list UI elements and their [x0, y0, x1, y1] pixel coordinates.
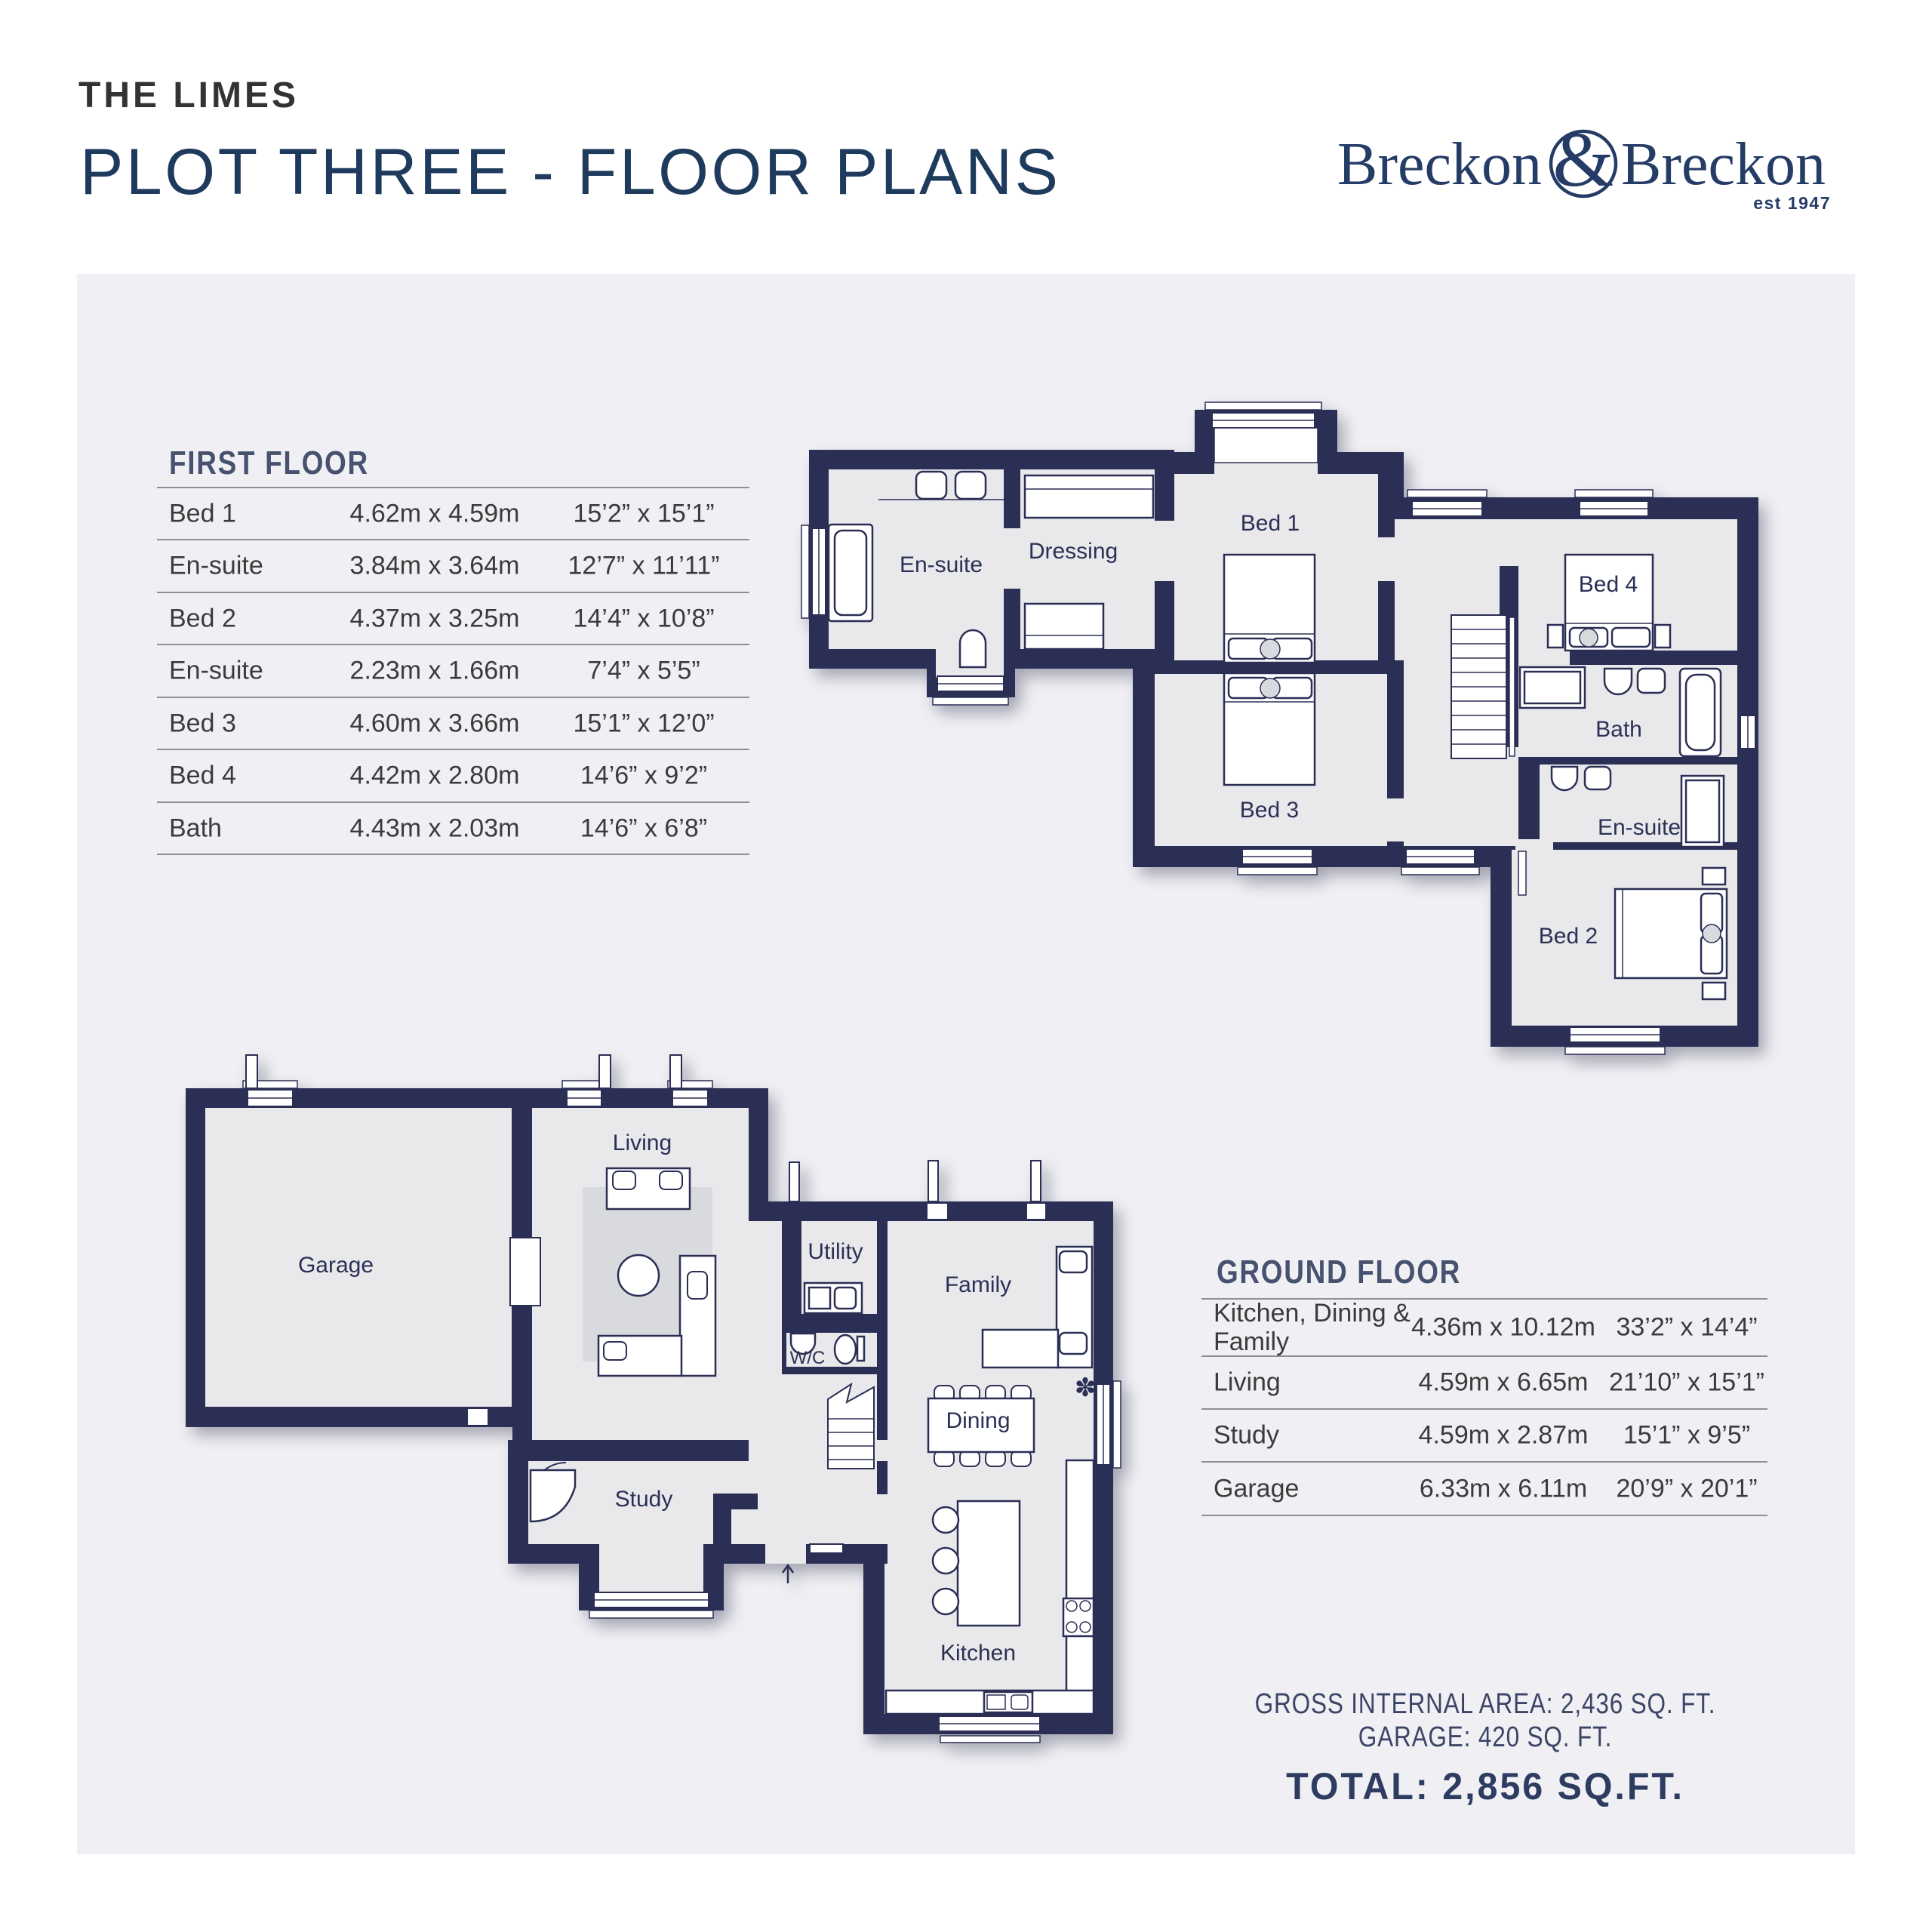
svg-text:Kitchen: Kitchen [940, 1641, 1016, 1666]
svg-text:Dining: Dining [946, 1408, 1010, 1433]
svg-text:✽: ✽ [1075, 1374, 1097, 1402]
svg-text:Bed 2: Bed 2 [1539, 924, 1598, 949]
svg-text:Utility: Utility [808, 1239, 863, 1264]
svg-text:En-suite: En-suite [1598, 815, 1681, 840]
svg-text:est 1947: est 1947 [1753, 193, 1831, 213]
svg-text:Study: Study [615, 1487, 673, 1512]
svg-text:&: & [1553, 116, 1614, 203]
svg-text:Breckon: Breckon [1337, 131, 1542, 198]
svg-text:Living: Living [613, 1131, 672, 1155]
svg-text:Bath: Bath [1595, 717, 1642, 742]
svg-text:Dressing: Dressing [1029, 539, 1118, 564]
svg-text:Breckon: Breckon [1621, 131, 1826, 198]
svg-text:W/C: W/C [790, 1348, 826, 1368]
svg-text:Bed 3: Bed 3 [1240, 798, 1299, 823]
svg-text:En-suite: En-suite [900, 552, 983, 577]
svg-text:Bed 1: Bed 1 [1241, 511, 1300, 536]
svg-text:Family: Family [945, 1272, 1011, 1297]
svg-text:Bed 4: Bed 4 [1579, 572, 1638, 597]
svg-text:Garage: Garage [298, 1253, 374, 1278]
